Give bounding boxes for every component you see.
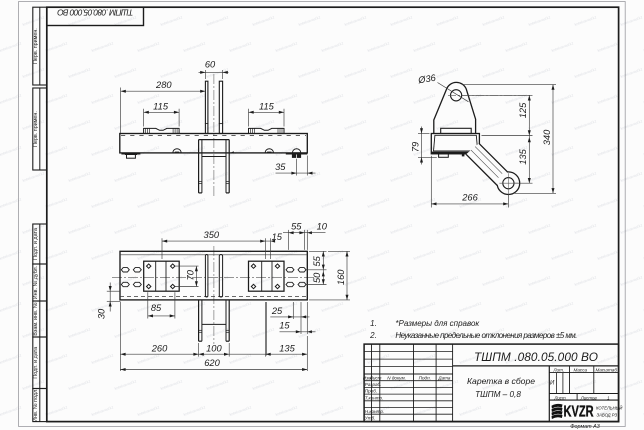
svg-text:kotelzavod.kz: kotelzavod.kz: [183, 405, 206, 417]
svg-text:260: 260: [151, 344, 168, 354]
svg-text:kotelzavod.kz: kotelzavod.kz: [551, 145, 574, 157]
svg-text:kotelzavod.kz: kotelzavod.kz: [321, 41, 344, 53]
svg-text:kotelzavod.kz: kotelzavod.kz: [459, 249, 482, 261]
svg-text:Лист: Лист: [369, 376, 382, 381]
svg-text:kotelzavod.kz: kotelzavod.kz: [229, 145, 252, 157]
svg-text:kotelzavod.kz: kotelzavod.kz: [367, 249, 390, 261]
svg-text:kotelzavod.kz: kotelzavod.kz: [528, 171, 551, 183]
svg-text:kotelzavod.kz: kotelzavod.kz: [367, 301, 390, 313]
svg-text:kotelzavod.kz: kotelzavod.kz: [321, 0, 344, 1]
svg-text:kotelzavod.kz: kotelzavod.kz: [482, 223, 505, 235]
svg-text:115: 115: [153, 101, 169, 111]
svg-text:kotelzavod.kz: kotelzavod.kz: [160, 67, 183, 79]
svg-text:kotelzavod.kz: kotelzavod.kz: [413, 249, 436, 261]
svg-text:340: 340: [542, 129, 552, 145]
svg-text:kotelzavod.kz: kotelzavod.kz: [390, 171, 413, 183]
svg-text:kotelzavod.kz: kotelzavod.kz: [160, 15, 183, 27]
svg-text:kotelzavod.kz: kotelzavod.kz: [321, 301, 344, 313]
svg-text:ТШПМ .080.05.000 ВО: ТШПМ .080.05.000 ВО: [57, 8, 133, 18]
svg-text:kotelzavod.kz: kotelzavod.kz: [459, 41, 482, 53]
svg-text:kotelzavod.kz: kotelzavod.kz: [528, 275, 551, 287]
svg-text:kotelzavod.kz: kotelzavod.kz: [528, 67, 551, 79]
svg-text:kotelzavod.kz: kotelzavod.kz: [528, 223, 551, 235]
svg-text:kotelzavod.kz: kotelzavod.kz: [413, 405, 436, 417]
svg-text:Ø36: Ø36: [417, 73, 438, 86]
svg-text:kotelzavod.kz: kotelzavod.kz: [160, 223, 183, 235]
svg-text:kotelzavod.kz: kotelzavod.kz: [91, 145, 114, 157]
svg-text:kotelzavod.kz: kotelzavod.kz: [482, 15, 505, 27]
svg-text:kotelzavod.kz: kotelzavod.kz: [137, 145, 160, 157]
svg-text:350: 350: [204, 230, 220, 240]
svg-text:Подп. и дата: Подп. и дата: [33, 228, 39, 260]
svg-text:kotelzavod.kz: kotelzavod.kz: [413, 93, 436, 105]
svg-text:kotelzavod.kz: kotelzavod.kz: [229, 41, 252, 53]
svg-text:kotelzavod.kz: kotelzavod.kz: [505, 301, 528, 313]
svg-text:kotelzavod.kz: kotelzavod.kz: [298, 327, 321, 339]
svg-text:kotelzavod.kz: kotelzavod.kz: [620, 275, 643, 287]
svg-text:620: 620: [204, 358, 220, 368]
svg-text:kotelzavod.kz: kotelzavod.kz: [183, 145, 206, 157]
svg-text:kotelzavod.kz: kotelzavod.kz: [206, 119, 229, 131]
svg-text:kotelzavod.kz: kotelzavod.kz: [45, 197, 68, 209]
svg-text:kotelzavod.kz: kotelzavod.kz: [137, 197, 160, 209]
svg-text:kotelzavod.kz: kotelzavod.kz: [160, 327, 183, 339]
svg-text:kotelzavod.kz: kotelzavod.kz: [482, 275, 505, 287]
svg-text:kotelzavod.kz: kotelzavod.kz: [183, 41, 206, 53]
svg-text:kotelzavod.kz: kotelzavod.kz: [551, 93, 574, 105]
svg-text:Каретка в сборе: Каретка в сборе: [467, 376, 535, 386]
svg-text:Формат А3: Формат А3: [570, 424, 600, 430]
svg-text:kotelzavod.kz: kotelzavod.kz: [436, 171, 459, 183]
svg-text:kotelzavod.kz: kotelzavod.kz: [137, 405, 160, 417]
svg-text:Дата: Дата: [437, 376, 451, 381]
svg-text:kotelzavod.kz: kotelzavod.kz: [574, 275, 597, 287]
svg-text:kotelzavod.kz: kotelzavod.kz: [413, 301, 436, 313]
svg-text:kotelzavod.kz: kotelzavod.kz: [367, 0, 390, 1]
svg-text:kotelzavod.kz: kotelzavod.kz: [68, 275, 91, 287]
svg-text:kotelzavod.kz: kotelzavod.kz: [551, 249, 574, 261]
svg-text:Подп.: Подп.: [419, 376, 431, 381]
svg-text:KVZR: KVZR: [564, 403, 594, 420]
svg-text:Инв. № дубл.: Инв. № дубл.: [33, 266, 39, 299]
svg-text:kotelzavod.kz: kotelzavod.kz: [597, 93, 620, 105]
svg-text:kotelzavod.kz: kotelzavod.kz: [505, 249, 528, 261]
svg-text:kotelzavod.kz: kotelzavod.kz: [68, 223, 91, 235]
svg-text:60: 60: [205, 60, 216, 70]
svg-text:kotelzavod.kz: kotelzavod.kz: [551, 41, 574, 53]
svg-text:115: 115: [259, 101, 275, 111]
svg-text:kotelzavod.kz: kotelzavod.kz: [367, 145, 390, 157]
svg-text:kotelzavod.kz: kotelzavod.kz: [321, 405, 344, 417]
svg-text:kotelzavod.kz: kotelzavod.kz: [252, 15, 275, 27]
svg-text:kotelzavod.kz: kotelzavod.kz: [22, 171, 45, 183]
svg-text:kotelzavod.kz: kotelzavod.kz: [45, 41, 68, 53]
svg-text:kotelzavod.kz: kotelzavod.kz: [597, 41, 620, 53]
svg-text:kotelzavod.kz: kotelzavod.kz: [91, 249, 114, 261]
svg-text:25: 25: [271, 306, 283, 316]
svg-text:kotelzavod.kz: kotelzavod.kz: [160, 379, 183, 391]
svg-text:kotelzavod.kz: kotelzavod.kz: [91, 405, 114, 417]
svg-text:N докум.: N докум.: [387, 376, 406, 381]
svg-text:kotelzavod.kz: kotelzavod.kz: [114, 327, 137, 339]
svg-text:kotelzavod.kz: kotelzavod.kz: [574, 171, 597, 183]
svg-text:kotelzavod.kz: kotelzavod.kz: [505, 41, 528, 53]
svg-text:kotelzavod.kz: kotelzavod.kz: [436, 223, 459, 235]
svg-text:kotelzavod.kz: kotelzavod.kz: [551, 301, 574, 313]
svg-text:kotelzavod.kz: kotelzavod.kz: [574, 327, 597, 339]
svg-text:kotelzavod.kz: kotelzavod.kz: [298, 379, 321, 391]
svg-text:kotelzavod.kz: kotelzavod.kz: [298, 67, 321, 79]
svg-text:2.: 2.: [369, 331, 377, 340]
svg-text:kotelzavod.kz: kotelzavod.kz: [505, 405, 528, 417]
svg-text:15: 15: [272, 232, 283, 242]
svg-text:kotelzavod.kz: kotelzavod.kz: [45, 93, 68, 105]
svg-text:kotelzavod.kz: kotelzavod.kz: [482, 119, 505, 131]
svg-text:kotelzavod.kz: kotelzavod.kz: [597, 197, 620, 209]
svg-text:kotelzavod.kz: kotelzavod.kz: [620, 379, 643, 391]
svg-text:Т.контр.: Т.контр.: [365, 395, 384, 400]
svg-text:kotelzavod.kz: kotelzavod.kz: [160, 171, 183, 183]
svg-text:kotelzavod.kz: kotelzavod.kz: [68, 119, 91, 131]
svg-text:kotelzavod.kz: kotelzavod.kz: [551, 197, 574, 209]
svg-text:kotelzavod.kz: kotelzavod.kz: [390, 15, 413, 27]
svg-text:kotelzavod.kz: kotelzavod.kz: [229, 353, 252, 365]
svg-text:kotelzavod.kz: kotelzavod.kz: [45, 405, 68, 417]
svg-text:kotelzavod.kz: kotelzavod.kz: [574, 223, 597, 235]
svg-text:kotelzavod.kz: kotelzavod.kz: [137, 353, 160, 365]
svg-text:kotelzavod.kz: kotelzavod.kz: [436, 119, 459, 131]
svg-text:135: 135: [279, 344, 295, 354]
svg-text:kotelzavod.kz: kotelzavod.kz: [436, 67, 459, 79]
svg-text:kotelzavod.kz: kotelzavod.kz: [229, 405, 252, 417]
svg-text:85: 85: [151, 303, 162, 313]
svg-text:Инв. № подл.: Инв. № подл.: [33, 388, 39, 422]
svg-text:kotelzavod.kz: kotelzavod.kz: [459, 301, 482, 313]
svg-text:160: 160: [336, 269, 346, 285]
svg-text:kotelzavod.kz: kotelzavod.kz: [298, 15, 321, 27]
svg-text:kotelzavod.kz: kotelzavod.kz: [574, 67, 597, 79]
svg-text:КОТЕЛЬНЫЙ: КОТЕЛЬНЫЙ: [596, 406, 622, 411]
svg-text:kotelzavod.kz: kotelzavod.kz: [390, 67, 413, 79]
svg-text:kotelzavod.kz: kotelzavod.kz: [390, 223, 413, 235]
svg-text:kotelzavod.kz: kotelzavod.kz: [45, 301, 68, 313]
svg-text:kotelzavod.kz: kotelzavod.kz: [275, 0, 298, 1]
svg-text:kotelzavod.kz: kotelzavod.kz: [597, 249, 620, 261]
svg-text:kotelzavod.kz: kotelzavod.kz: [321, 93, 344, 105]
svg-text:kotelzavod.kz: kotelzavod.kz: [413, 41, 436, 53]
svg-text:kotelzavod.kz: kotelzavod.kz: [68, 171, 91, 183]
svg-text:kotelzavod.kz: kotelzavod.kz: [551, 0, 574, 1]
svg-text:kotelzavod.kz: kotelzavod.kz: [137, 0, 160, 1]
svg-text:Неуказанные предельные отклоне: Неуказанные предельные отклонения размер…: [395, 331, 577, 340]
svg-text:Перв. примен.: Перв. примен.: [33, 28, 39, 64]
svg-text:kotelzavod.kz: kotelzavod.kz: [0, 0, 22, 1]
svg-text:kotelzavod.kz: kotelzavod.kz: [206, 15, 229, 27]
svg-text:kotelzavod.kz: kotelzavod.kz: [275, 93, 298, 105]
svg-text:kotelzavod.kz: kotelzavod.kz: [275, 405, 298, 417]
svg-text:Проб.: Проб.: [365, 389, 377, 394]
svg-text:ТШПМ – 0,8: ТШПМ – 0,8: [475, 390, 521, 399]
svg-text:kotelzavod.kz: kotelzavod.kz: [436, 15, 459, 27]
svg-text:Перв. примен.: Перв. примен.: [33, 111, 39, 147]
svg-text:kotelzavod.kz: kotelzavod.kz: [252, 327, 275, 339]
svg-text:kotelzavod.kz: kotelzavod.kz: [183, 197, 206, 209]
svg-text:kotelzavod.kz: kotelzavod.kz: [344, 275, 367, 287]
svg-text:35: 35: [275, 162, 286, 172]
svg-text:280: 280: [155, 80, 172, 90]
svg-text:*Размеры для справок: *Размеры для справок: [395, 319, 480, 328]
svg-text:kotelzavod.kz: kotelzavod.kz: [574, 119, 597, 131]
svg-text:kotelzavod.kz: kotelzavod.kz: [390, 275, 413, 287]
svg-text:kotelzavod.kz: kotelzavod.kz: [91, 0, 114, 1]
svg-text:kotelzavod.kz: kotelzavod.kz: [91, 41, 114, 53]
svg-text:kotelzavod.kz: kotelzavod.kz: [321, 197, 344, 209]
svg-text:55: 55: [312, 255, 322, 266]
svg-text:kotelzavod.kz: kotelzavod.kz: [68, 327, 91, 339]
svg-text:kotelzavod.kz: kotelzavod.kz: [413, 0, 436, 1]
svg-text:kotelzavod.kz: kotelzavod.kz: [206, 379, 229, 391]
svg-text:kotelzavod.kz: kotelzavod.kz: [344, 171, 367, 183]
svg-text:Лист: Лист: [553, 395, 566, 400]
svg-text:15: 15: [279, 321, 290, 331]
svg-text:kotelzavod.kz: kotelzavod.kz: [321, 145, 344, 157]
svg-text:kotelzavod.kz: kotelzavod.kz: [183, 0, 206, 1]
svg-text:kotelzavod.kz: kotelzavod.kz: [344, 327, 367, 339]
svg-text:kotelzavod.kz: kotelzavod.kz: [390, 119, 413, 131]
svg-text:kotelzavod.kz: kotelzavod.kz: [91, 197, 114, 209]
svg-text:kotelzavod.kz: kotelzavod.kz: [22, 15, 45, 27]
svg-text:kotelzavod.kz: kotelzavod.kz: [252, 379, 275, 391]
svg-text:kotelzavod.kz: kotelzavod.kz: [436, 275, 459, 287]
svg-text:kotelzavod.kz: kotelzavod.kz: [275, 41, 298, 53]
svg-text:kotelzavod.kz: kotelzavod.kz: [252, 67, 275, 79]
svg-text:kotelzavod.kz: kotelzavod.kz: [229, 93, 252, 105]
svg-text:kotelzavod.kz: kotelzavod.kz: [528, 15, 551, 27]
svg-text:kotelzavod.kz: kotelzavod.kz: [505, 0, 528, 1]
svg-text:kotelzavod.kz: kotelzavod.kz: [620, 119, 643, 131]
svg-text:Н.контр.: Н.контр.: [365, 409, 384, 414]
svg-text:kotelzavod.kz: kotelzavod.kz: [597, 0, 620, 1]
svg-text:kotelzavod.kz: kotelzavod.kz: [68, 379, 91, 391]
svg-text:Листов: Листов: [580, 395, 598, 400]
svg-text:kotelzavod.kz: kotelzavod.kz: [620, 327, 643, 339]
svg-text:kotelzavod.kz: kotelzavod.kz: [597, 145, 620, 157]
svg-text:kotelzavod.kz: kotelzavod.kz: [91, 353, 114, 365]
svg-text:kotelzavod.kz: kotelzavod.kz: [45, 145, 68, 157]
svg-text:266: 266: [461, 193, 478, 203]
svg-text:kotelzavod.kz: kotelzavod.kz: [574, 15, 597, 27]
svg-text:kotelzavod.kz: kotelzavod.kz: [367, 197, 390, 209]
svg-text:ЗАВОД РЗ: ЗАВОД РЗ: [597, 413, 618, 418]
svg-text:kotelzavod.kz: kotelzavod.kz: [367, 93, 390, 105]
svg-text:kotelzavod.kz: kotelzavod.kz: [68, 67, 91, 79]
svg-text:kotelzavod.kz: kotelzavod.kz: [620, 67, 643, 79]
svg-text:kotelzavod.kz: kotelzavod.kz: [275, 197, 298, 209]
svg-text:kotelzavod.kz: kotelzavod.kz: [298, 119, 321, 131]
svg-text:kotelzavod.kz: kotelzavod.kz: [114, 171, 137, 183]
svg-text:kotelzavod.kz: kotelzavod.kz: [620, 223, 643, 235]
svg-text:Масса: Масса: [574, 367, 588, 372]
svg-text:Утб.: Утб.: [365, 416, 376, 421]
svg-text:kotelzavod.kz: kotelzavod.kz: [114, 379, 137, 391]
svg-text:1.: 1.: [370, 319, 377, 328]
svg-text:kotelzavod.kz: kotelzavod.kz: [620, 171, 643, 183]
svg-text:kotelzavod.kz: kotelzavod.kz: [229, 0, 252, 1]
svg-text:55: 55: [291, 222, 302, 232]
svg-text:10: 10: [317, 222, 328, 232]
svg-text:kotelzavod.kz: kotelzavod.kz: [114, 223, 137, 235]
svg-text:50: 50: [312, 272, 322, 283]
svg-text:kotelzavod.kz: kotelzavod.kz: [528, 119, 551, 131]
svg-text:Масштаб: Масштаб: [595, 367, 617, 372]
svg-text:kotelzavod.kz: kotelzavod.kz: [183, 301, 206, 313]
svg-text:70: 70: [185, 269, 195, 280]
svg-text:kotelzavod.kz: kotelzavod.kz: [597, 301, 620, 313]
svg-text:135: 135: [518, 148, 528, 164]
svg-text:kotelzavod.kz: kotelzavod.kz: [597, 353, 620, 365]
svg-text:kotelzavod.kz: kotelzavod.kz: [45, 353, 68, 365]
svg-text:Взам. инв. №: Взам. инв. №: [33, 302, 39, 336]
svg-text:kotelzavod.kz: kotelzavod.kz: [413, 197, 436, 209]
svg-text:kotelzavod.kz: kotelzavod.kz: [114, 67, 137, 79]
svg-text:Лит.: Лит.: [552, 367, 564, 372]
svg-text:kotelzavod.kz: kotelzavod.kz: [459, 405, 482, 417]
svg-text:kotelzavod.kz: kotelzavod.kz: [114, 119, 137, 131]
svg-text:kotelzavod.kz: kotelzavod.kz: [275, 353, 298, 365]
svg-text:kotelzavod.kz: kotelzavod.kz: [137, 41, 160, 53]
svg-text:kotelzavod.kz: kotelzavod.kz: [91, 93, 114, 105]
svg-text:100: 100: [206, 344, 222, 354]
svg-text:kotelzavod.kz: kotelzavod.kz: [344, 223, 367, 235]
svg-text:kotelzavod.kz: kotelzavod.kz: [252, 119, 275, 131]
svg-text:kotelzavod.kz: kotelzavod.kz: [344, 15, 367, 27]
svg-text:kotelzavod.kz: kotelzavod.kz: [321, 353, 344, 365]
svg-text:Подп. и дата: Подп. и дата: [33, 347, 39, 379]
svg-text:30: 30: [96, 308, 106, 319]
svg-text:kotelzavod.kz: kotelzavod.kz: [459, 0, 482, 1]
svg-text:125: 125: [518, 102, 528, 118]
svg-text:kotelzavod.kz: kotelzavod.kz: [22, 67, 45, 79]
svg-text:kotelzavod.kz: kotelzavod.kz: [482, 67, 505, 79]
svg-text:kotelzavod.kz: kotelzavod.kz: [367, 41, 390, 53]
svg-text:kotelzavod.kz: kotelzavod.kz: [45, 0, 68, 1]
svg-text:kotelzavod.kz: kotelzavod.kz: [229, 197, 252, 209]
svg-text:ТШПМ .080.05.000 ВО: ТШПМ .080.05.000 ВО: [474, 350, 598, 364]
svg-text:kotelzavod.kz: kotelzavod.kz: [229, 301, 252, 313]
svg-text:kotelzavod.kz: kotelzavod.kz: [45, 249, 68, 261]
svg-text:Разраб.: Разраб.: [365, 382, 382, 387]
svg-text:kotelzavod.kz: kotelzavod.kz: [252, 171, 275, 183]
svg-text:И: И: [550, 381, 555, 387]
svg-text:kotelzavod.kz: kotelzavod.kz: [620, 15, 643, 27]
svg-text:kotelzavod.kz: kotelzavod.kz: [344, 119, 367, 131]
svg-text:79: 79: [411, 142, 421, 152]
svg-text:kotelzavod.kz: kotelzavod.kz: [183, 93, 206, 105]
svg-text:kotelzavod.kz: kotelzavod.kz: [344, 67, 367, 79]
